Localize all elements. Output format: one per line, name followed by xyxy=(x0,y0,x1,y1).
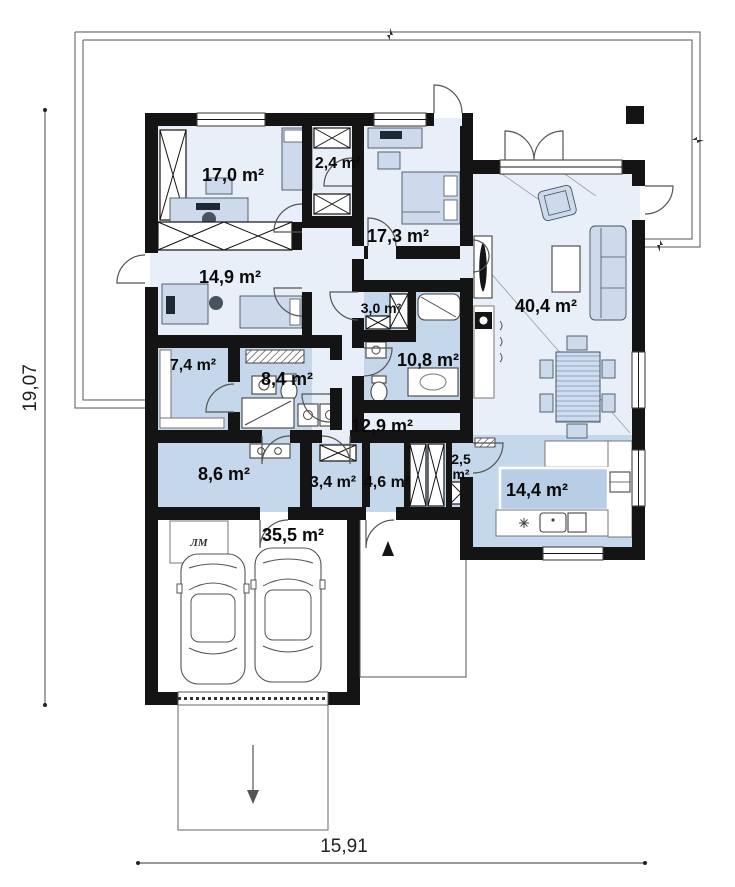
room-label-kitchen: 14,4 m² xyxy=(506,480,568,500)
dining-table xyxy=(556,352,600,422)
door-living-right xyxy=(645,186,673,214)
room-label-utility: 8,6 m² xyxy=(198,464,250,484)
monitor-2 xyxy=(378,152,400,169)
room-label-hallway: 12,9 m² xyxy=(351,416,413,436)
window xyxy=(632,450,645,506)
room-label-closet-unit: m² xyxy=(452,466,469,482)
room-label-bedroom-1: 17,0 m² xyxy=(202,165,264,185)
window xyxy=(543,547,603,560)
entrance-arrow xyxy=(382,541,394,556)
coffee-table xyxy=(552,246,580,292)
door-entrance xyxy=(366,520,394,548)
room-label-vestibule: 4,6 m² xyxy=(364,474,410,491)
hob-symbol xyxy=(519,518,529,528)
terrace-tick-bottom xyxy=(657,240,663,252)
dimension-width: 15,91 xyxy=(320,836,368,857)
floor-plan-page: ЛМ xyxy=(0,0,735,887)
window xyxy=(374,113,426,126)
sofa xyxy=(590,226,626,320)
corridor-floor-b xyxy=(364,259,460,280)
terrace-tick-top xyxy=(387,28,393,40)
monitor-3 xyxy=(166,296,175,314)
chair-n xyxy=(567,336,587,350)
counter-l2 xyxy=(160,418,224,428)
room-label-bathroom-2: 10,8 m² xyxy=(397,350,459,370)
room-label-bathroom-1: 8,4 m² xyxy=(261,369,313,389)
room-label-storage: 3,0 m² xyxy=(361,300,402,316)
car-2 xyxy=(251,548,325,682)
monitor xyxy=(196,203,220,210)
room-label-bedroom-2: 17,3 m² xyxy=(367,226,429,246)
room-label-laundry: 7,4 m² xyxy=(170,357,216,374)
door-terrace-14-9 xyxy=(117,255,145,283)
door-terrace-top xyxy=(434,85,462,113)
stove-burner xyxy=(480,317,488,325)
chair-s xyxy=(567,424,587,438)
room-label-living: 40,4 m² xyxy=(515,296,577,316)
pillow-3 xyxy=(290,299,300,325)
radiator xyxy=(246,350,304,363)
boiler xyxy=(250,444,290,458)
chimney xyxy=(626,106,644,124)
chair-w1 xyxy=(540,360,553,378)
sink-faucet xyxy=(551,518,554,521)
door-french-right xyxy=(534,131,563,160)
washbasin-2 xyxy=(366,342,386,358)
porch-outline xyxy=(360,520,466,677)
chair-w2 xyxy=(540,394,553,412)
terrace-tick-right xyxy=(692,137,704,143)
door-french-left xyxy=(505,131,534,160)
garage-door xyxy=(178,692,328,705)
washer xyxy=(298,404,318,426)
room-label-garage: 35,5 m² xyxy=(262,525,324,545)
vanity xyxy=(408,368,458,396)
sink-drainer xyxy=(568,513,586,532)
chair-3 xyxy=(209,296,223,310)
attic-hatch-label: ЛМ xyxy=(189,537,209,549)
window xyxy=(632,352,645,408)
pillow-2 xyxy=(444,200,457,220)
chair-e1 xyxy=(602,360,615,378)
window-corner xyxy=(500,160,622,174)
dimension-height: 19,07 xyxy=(20,364,41,412)
room-label-bedroom-3: 14,9 m² xyxy=(199,267,261,287)
printer xyxy=(380,131,402,139)
room-label-toilet: 3,4 m² xyxy=(310,474,356,491)
toilet-2 xyxy=(371,382,387,402)
room-label-wardrobe-1: 2,4 m² xyxy=(315,155,361,172)
window xyxy=(197,113,265,126)
car-1 xyxy=(177,554,249,684)
pillow-1 xyxy=(444,176,457,196)
sink xyxy=(540,513,566,532)
room-label-closet-value: 2,5 xyxy=(451,451,471,467)
floor-plan-drawing: ЛМ xyxy=(0,0,735,887)
chair-e2 xyxy=(602,394,615,412)
wardrobe-band xyxy=(158,222,292,250)
